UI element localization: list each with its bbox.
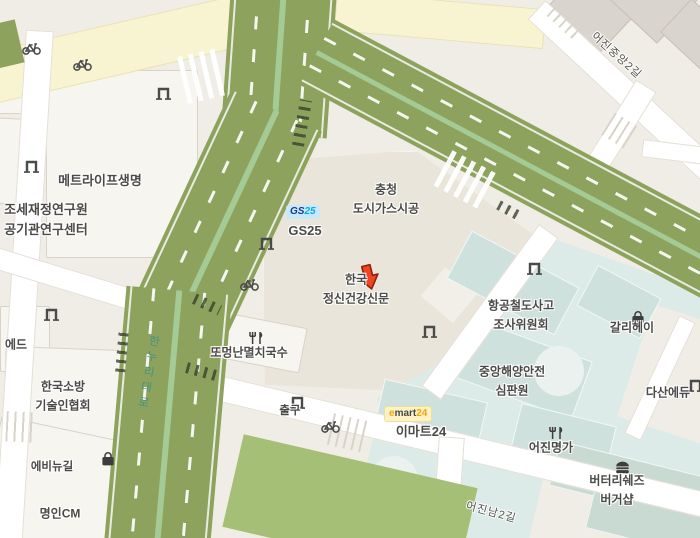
poi-kipf-line: 공기관연구센터 [4, 220, 88, 240]
poi-ed-line: 에드 [5, 336, 27, 355]
poi-aviation-railway-board[interactable]: 항공철도사고조사위원회 [488, 296, 554, 333]
gs25-logo-25: 25 [304, 206, 315, 217]
gs25-logo-gs: GS [290, 206, 304, 217]
poi-metlife[interactable]: 메트라이프생명 [58, 171, 142, 191]
road-eojin-nam-2gil: 어진남2길 [464, 498, 518, 528]
poi-mental-health-news-line: 정신건강신문 [323, 289, 389, 308]
poi-buttery-burger-line: 버터리쉐즈 [589, 471, 644, 490]
poi-myeongin-cm-line: 명인CM [40, 505, 81, 524]
poi-maritime-tribunal[interactable]: 중앙해양안전심판원 [479, 362, 545, 399]
emart24-logo[interactable]: emart24 [384, 406, 432, 422]
poi-maritime-tribunal-line: 심판원 [479, 381, 545, 400]
poi-myeongin-cm[interactable]: 명인CM [40, 505, 81, 524]
poi-exit-line: 출구 [279, 403, 300, 421]
road-hannuri-daero-line: 한누리대로 [132, 333, 163, 412]
poi-fire-association[interactable]: 한국소방기술인협회 [35, 377, 90, 414]
poi-chungcheong-gas-line: 충청 [353, 180, 419, 199]
poi-maritime-tribunal-line: 중앙해양안전 [479, 362, 545, 381]
poi-avenue-gil[interactable]: 에비뉴길 [31, 459, 73, 477]
gs25-logo[interactable]: GS25 [286, 205, 320, 219]
poi-dasan-edu[interactable]: 다산에듀 [646, 384, 690, 403]
road-eojin-nam-2gil-line: 어진남2길 [464, 498, 518, 528]
poi-eojin-myeongga[interactable]: 어진명가 [529, 439, 573, 458]
poi-noodle-shop-line: 또멍난멸치국수 [210, 344, 287, 363]
poi-gallihei-line: 갈리헤이 [610, 319, 654, 338]
poi-kipf[interactable]: 조세재정연구원공기관연구센터 [4, 200, 88, 240]
poi-aviation-railway-board-line: 조사위원회 [488, 315, 554, 334]
poi-avenue-gil-line: 에비뉴길 [31, 459, 73, 477]
poi-aviation-railway-board-line: 항공철도사고 [488, 296, 554, 315]
poi-fire-association-line: 한국소방 [35, 377, 90, 396]
poi-eojin-myeongga-line: 어진명가 [529, 439, 573, 458]
poi-gs25[interactable]: GS25 [288, 221, 321, 241]
poi-buttery-burger-line: 버거샵 [589, 490, 644, 509]
poi-chungcheong-gas[interactable]: 충청도시가스시공 [353, 180, 419, 217]
poi-buttery-burger[interactable]: 버터리쉐즈버거샵 [589, 471, 644, 508]
poi-mental-health-news[interactable]: 한국정신건강신문 [323, 270, 389, 307]
poi-metlife-line: 메트라이프생명 [58, 171, 142, 191]
poi-fire-association-line: 기술인협회 [35, 396, 90, 415]
road-eojin-jungang-2gil-line: 어진중앙2길 [587, 29, 645, 84]
emart24-logo-24: 24 [416, 408, 427, 419]
poi-emart24-line: 이마트24 [396, 422, 446, 442]
map-labels-layer: GS25 emart24 메트라이프생명조세재정연구원공기관연구센터GS25충청… [0, 0, 700, 538]
poi-kipf-line: 조세재정연구원 [4, 200, 88, 220]
poi-gallihei[interactable]: 갈리헤이 [610, 319, 654, 338]
poi-emart24[interactable]: 이마트24 [396, 422, 446, 442]
poi-exit[interactable]: 출구 [279, 403, 300, 421]
emart24-logo-mart: mart [395, 408, 417, 419]
map-canvas[interactable]: GS25 emart24 메트라이프생명조세재정연구원공기관연구센터GS25충청… [0, 0, 700, 538]
poi-gs25-line: GS25 [288, 221, 321, 241]
poi-noodle-shop[interactable]: 또멍난멸치국수 [210, 344, 287, 363]
poi-mental-health-news-line: 한국 [323, 270, 389, 289]
poi-chungcheong-gas-line: 도시가스시공 [353, 199, 419, 218]
road-hannuri-daero: 한누리대로 [132, 333, 163, 412]
poi-ed[interactable]: 에드 [5, 336, 27, 355]
road-eojin-jungang-2gil: 어진중앙2길 [587, 29, 645, 84]
poi-dasan-edu-line: 다산에듀 [646, 384, 690, 403]
